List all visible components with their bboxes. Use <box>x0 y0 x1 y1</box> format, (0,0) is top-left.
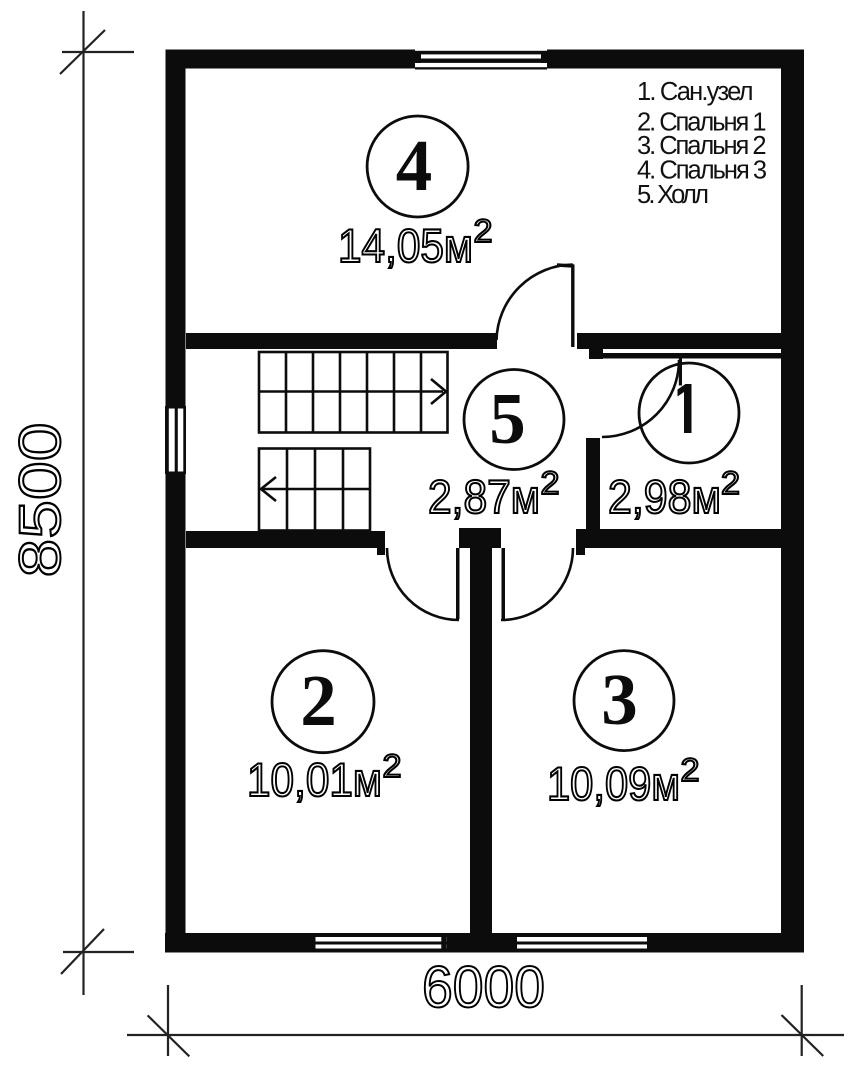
svg-text:2: 2 <box>541 465 560 501</box>
svg-text:10,09м: 10,09м <box>547 757 680 810</box>
svg-text:2: 2 <box>681 752 700 788</box>
svg-text:1. Сан.узел: 1. Сан.узел <box>637 78 754 106</box>
svg-text:8500: 8500 <box>8 423 73 578</box>
svg-text:4: 4 <box>396 125 433 206</box>
svg-text:6000: 6000 <box>422 955 545 1020</box>
svg-text:2: 2 <box>474 213 493 249</box>
svg-text:5. Холл: 5. Холл <box>637 181 709 209</box>
svg-text:2,87м: 2,87м <box>428 470 540 523</box>
svg-text:5: 5 <box>489 378 526 459</box>
svg-text:3: 3 <box>601 659 638 740</box>
svg-text:2,98м: 2,98м <box>608 470 721 523</box>
svg-text:14,05м: 14,05м <box>338 219 473 272</box>
svg-text:10,01м: 10,01м <box>247 753 382 806</box>
svg-text:2: 2 <box>300 660 337 741</box>
svg-text:2: 2 <box>383 748 402 784</box>
svg-text:2: 2 <box>721 465 740 501</box>
